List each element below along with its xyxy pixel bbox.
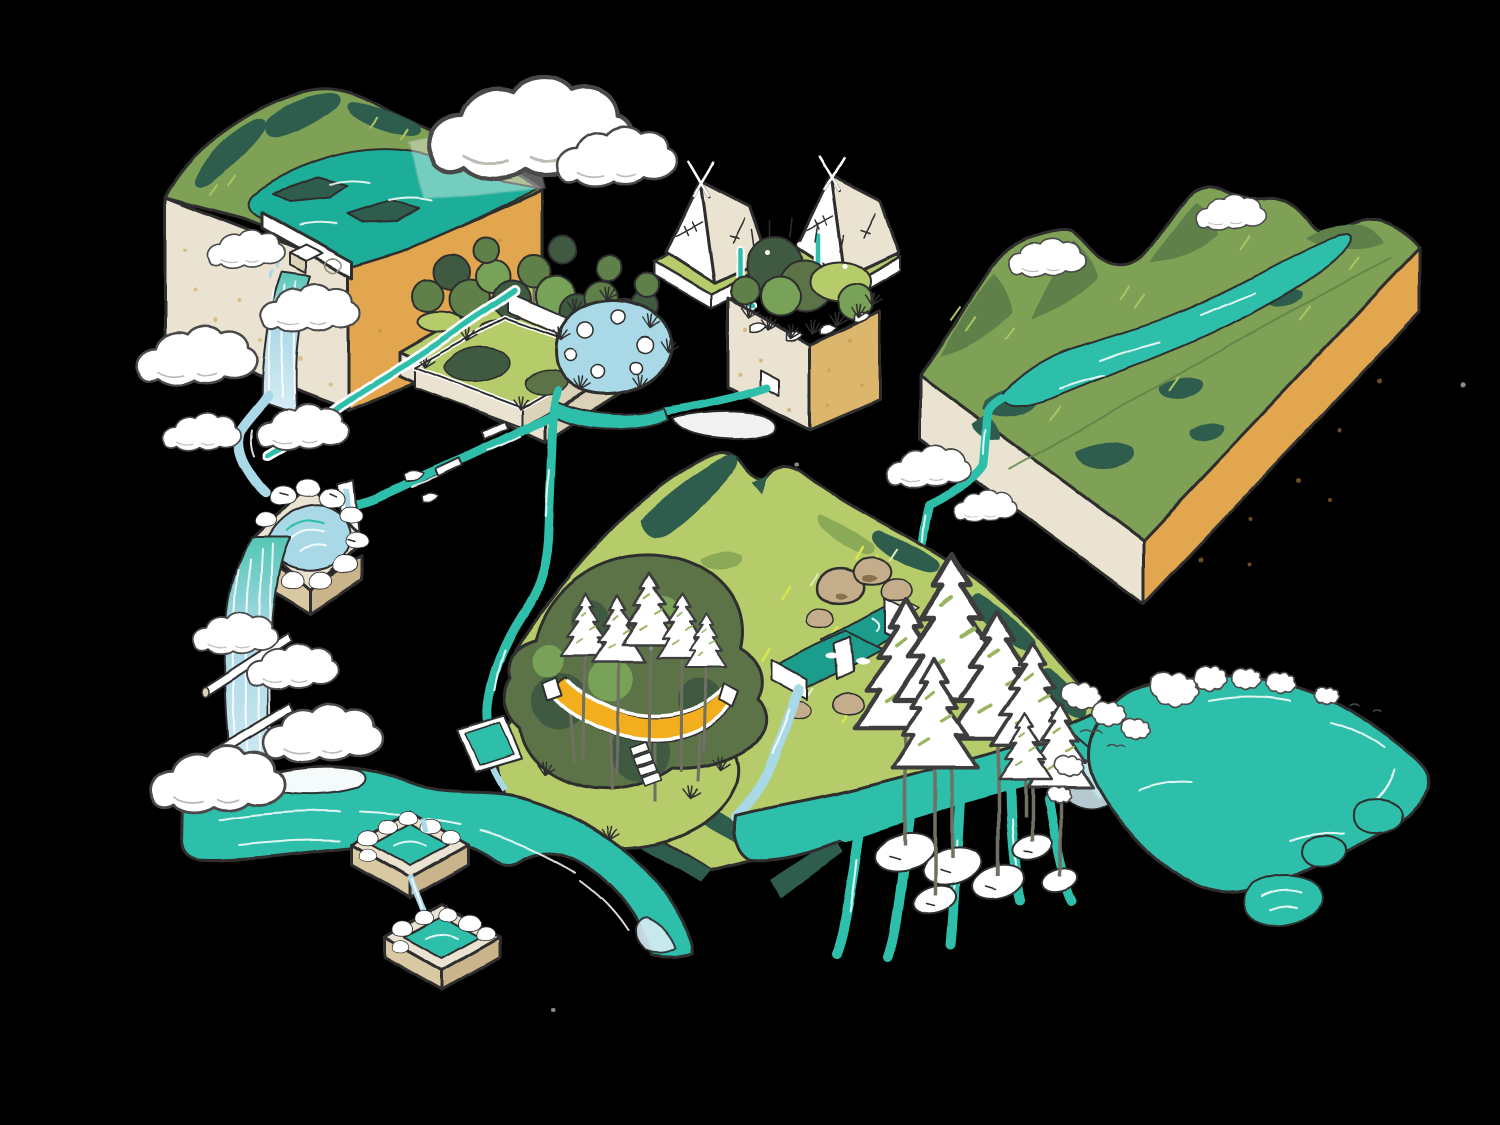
cloud bbox=[953, 490, 1016, 521]
cloud bbox=[163, 413, 241, 451]
weir-stream bbox=[346, 416, 552, 505]
cloud bbox=[257, 405, 349, 450]
lake-main bbox=[1089, 676, 1430, 893]
inlet-drip bbox=[423, 818, 426, 832]
illustration-stage bbox=[0, 0, 1500, 1125]
cube-left-face bbox=[728, 298, 810, 430]
lake-pond-b bbox=[1301, 836, 1346, 867]
lake bbox=[1046, 666, 1429, 926]
infiltration-pool-lower bbox=[384, 904, 500, 990]
cloud bbox=[151, 746, 285, 812]
lake-pond-a bbox=[1354, 800, 1402, 835]
cloud bbox=[137, 326, 257, 385]
cube-white-bank bbox=[672, 412, 776, 440]
watershed-diagram bbox=[0, 0, 1500, 1125]
lake-pond-c bbox=[1244, 875, 1323, 926]
cloud bbox=[887, 446, 972, 488]
cloud bbox=[193, 613, 278, 655]
valley-block bbox=[920, 187, 1420, 604]
